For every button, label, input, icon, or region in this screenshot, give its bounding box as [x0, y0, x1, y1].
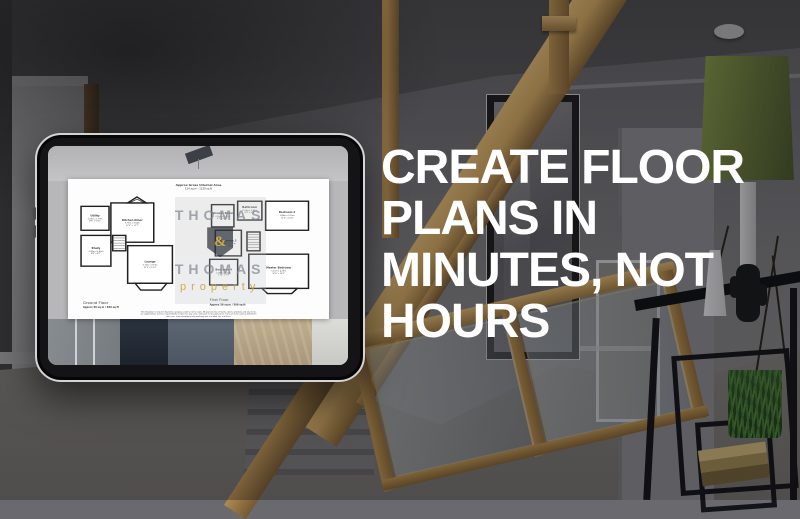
- tablet-volume-button: [33, 207, 36, 220]
- watermark-name-bottom: THOMAS: [175, 261, 266, 277]
- headline-line-2: PLANS IN: [381, 193, 793, 244]
- grass-plant: [728, 370, 782, 438]
- plan-header-subtitle: 114 sq m - 1229 sq ft: [185, 187, 212, 190]
- ground-floor-area: Approx 59 sq m / 639 sq ft: [82, 306, 119, 309]
- watermark-ampersand: &: [214, 234, 227, 251]
- plan-header-title: Approx Gross Internal Area: [175, 183, 221, 187]
- disclaimer-line: are approximate and no responsibility is…: [140, 313, 256, 316]
- newel-post-cap: [542, 16, 576, 31]
- watermark-shield-icon: &: [207, 227, 233, 257]
- room-label: Lounge: [144, 260, 155, 264]
- room-label: Study: [91, 246, 100, 250]
- headline-line-4: HOURS: [381, 296, 793, 347]
- room-label: Utility: [90, 214, 100, 218]
- newel-post-right: [549, 0, 569, 94]
- room-dim: 9'8" x 8'7": [90, 253, 100, 255]
- photo-white-cabinet: [312, 319, 348, 365]
- disclaimer-line: This floorplan is only for illustrative …: [140, 310, 255, 313]
- plan-disclaimer: This floorplan is only for illustrative …: [140, 310, 256, 318]
- stool-leg: [75, 319, 77, 365]
- room-dim: 8'6" x 5'10": [89, 221, 101, 223]
- photo-dark-furniture: [120, 319, 168, 365]
- tablet-volume-button: [33, 225, 36, 238]
- light-fixture-icon: [185, 146, 213, 164]
- room-label: Master Bedroom: [266, 266, 291, 270]
- light-fixture-drop: [198, 159, 199, 169]
- hero-image: { "headline": { "lines": ["CREATE FLOOR"…: [0, 0, 800, 500]
- disclaimer-line: suites are representations only and may …: [165, 315, 231, 318]
- headline-line-1: CREATE FLOOR: [381, 142, 793, 193]
- room-label: Kitchen Diner: [121, 218, 142, 222]
- photo-slate-unit: [168, 319, 234, 365]
- tablet-screen: Approx Gross Internal Area 114 sq m - 12…: [48, 146, 348, 365]
- smoke-detector: [714, 24, 744, 39]
- room-dim: 10'6" x 14'1": [272, 273, 285, 275]
- photo-tile-floor: [48, 319, 120, 365]
- room-dim: 12'3" x 11'7": [125, 225, 138, 227]
- hero-headline: CREATE FLOOR PLANS IN MINUTES, NOT HOURS: [381, 142, 793, 347]
- ground-floor-plan: [81, 197, 172, 290]
- screen-photo-room: [48, 319, 348, 365]
- ground-floor-caption: Ground Floor: [82, 301, 108, 305]
- first-floor-area: Approx 56 sq m / 599 sq ft: [209, 303, 246, 306]
- watermark-name-top: THOMAS: [175, 207, 266, 223]
- photo-wood-floor: [234, 319, 312, 365]
- headline-line-3: MINUTES, NOT: [381, 245, 793, 296]
- stool-leg: [93, 319, 95, 365]
- watermark-tagline: property: [180, 281, 260, 293]
- floorplan-sheet: Approx Gross Internal Area 114 sq m - 12…: [68, 179, 329, 319]
- agency-watermark: THOMAS & THOMAS property: [175, 197, 266, 304]
- room-label: Bedroom 2: [278, 210, 295, 214]
- screen-photo-ceiling: [48, 146, 348, 181]
- room-dim: 12'3" x 12'3": [143, 267, 156, 269]
- tablet-device: Approx Gross Internal Area 114 sq m - 12…: [35, 133, 365, 382]
- room-dim: 11'5" x 10'4": [280, 217, 293, 219]
